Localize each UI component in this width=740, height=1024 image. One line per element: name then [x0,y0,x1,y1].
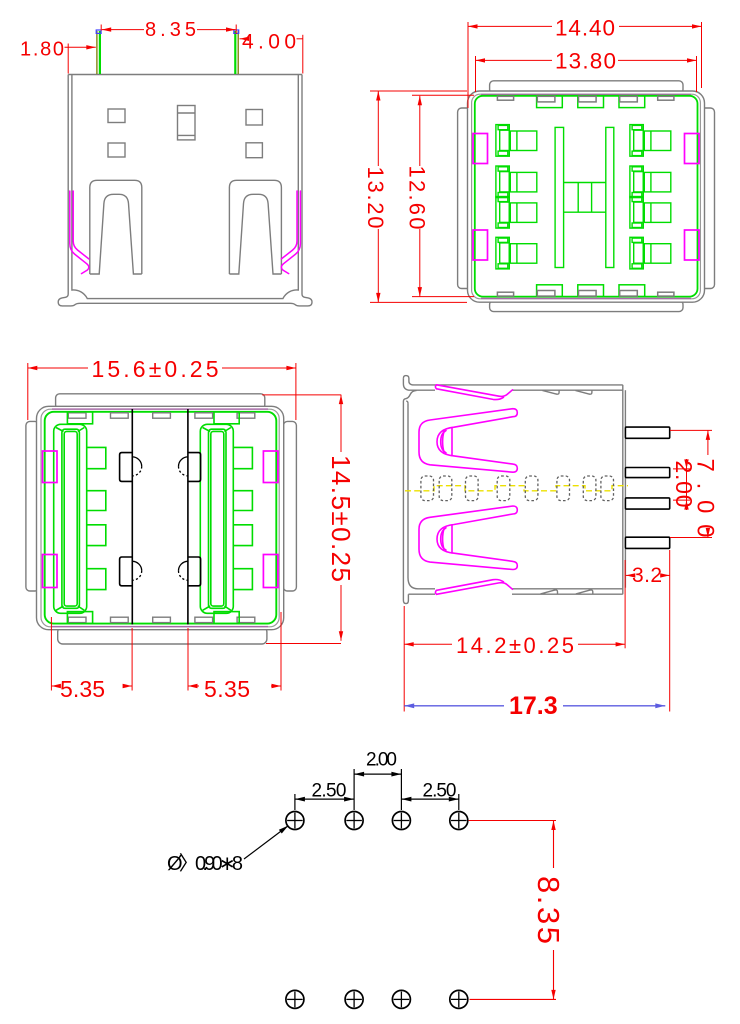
svg-text:2.50: 2.50 [423,781,457,802]
svg-text:5.35: 5.35 [60,676,105,702]
svg-text:14.5±0.25: 14.5±0.25 [326,455,356,582]
svg-text:2.00: 2.00 [366,750,397,771]
svg-text:8.35: 8.35 [145,19,196,41]
svg-text:4.00: 4.00 [242,31,296,54]
svg-text:3.2: 3.2 [632,564,662,587]
svg-text:5.35: 5.35 [204,676,250,702]
svg-text:1.80: 1.80 [20,39,64,61]
svg-text:13.20: 13.20 [363,167,388,229]
svg-text:13.80: 13.80 [555,49,616,74]
svg-text:15.6±0.25: 15.6±0.25 [92,356,219,382]
svg-text:2.00: 2.00 [671,461,697,508]
svg-text:8.35: 8.35 [531,876,566,944]
svg-text:14.40: 14.40 [555,16,615,41]
svg-text:Ø〉0.90∗8: Ø〉0.90∗8 [167,853,243,875]
svg-text:12.60: 12.60 [405,166,430,230]
svg-text:14.2±0.25: 14.2±0.25 [456,633,574,658]
svg-text:17.3: 17.3 [509,692,558,720]
svg-text:2.50: 2.50 [312,781,347,802]
